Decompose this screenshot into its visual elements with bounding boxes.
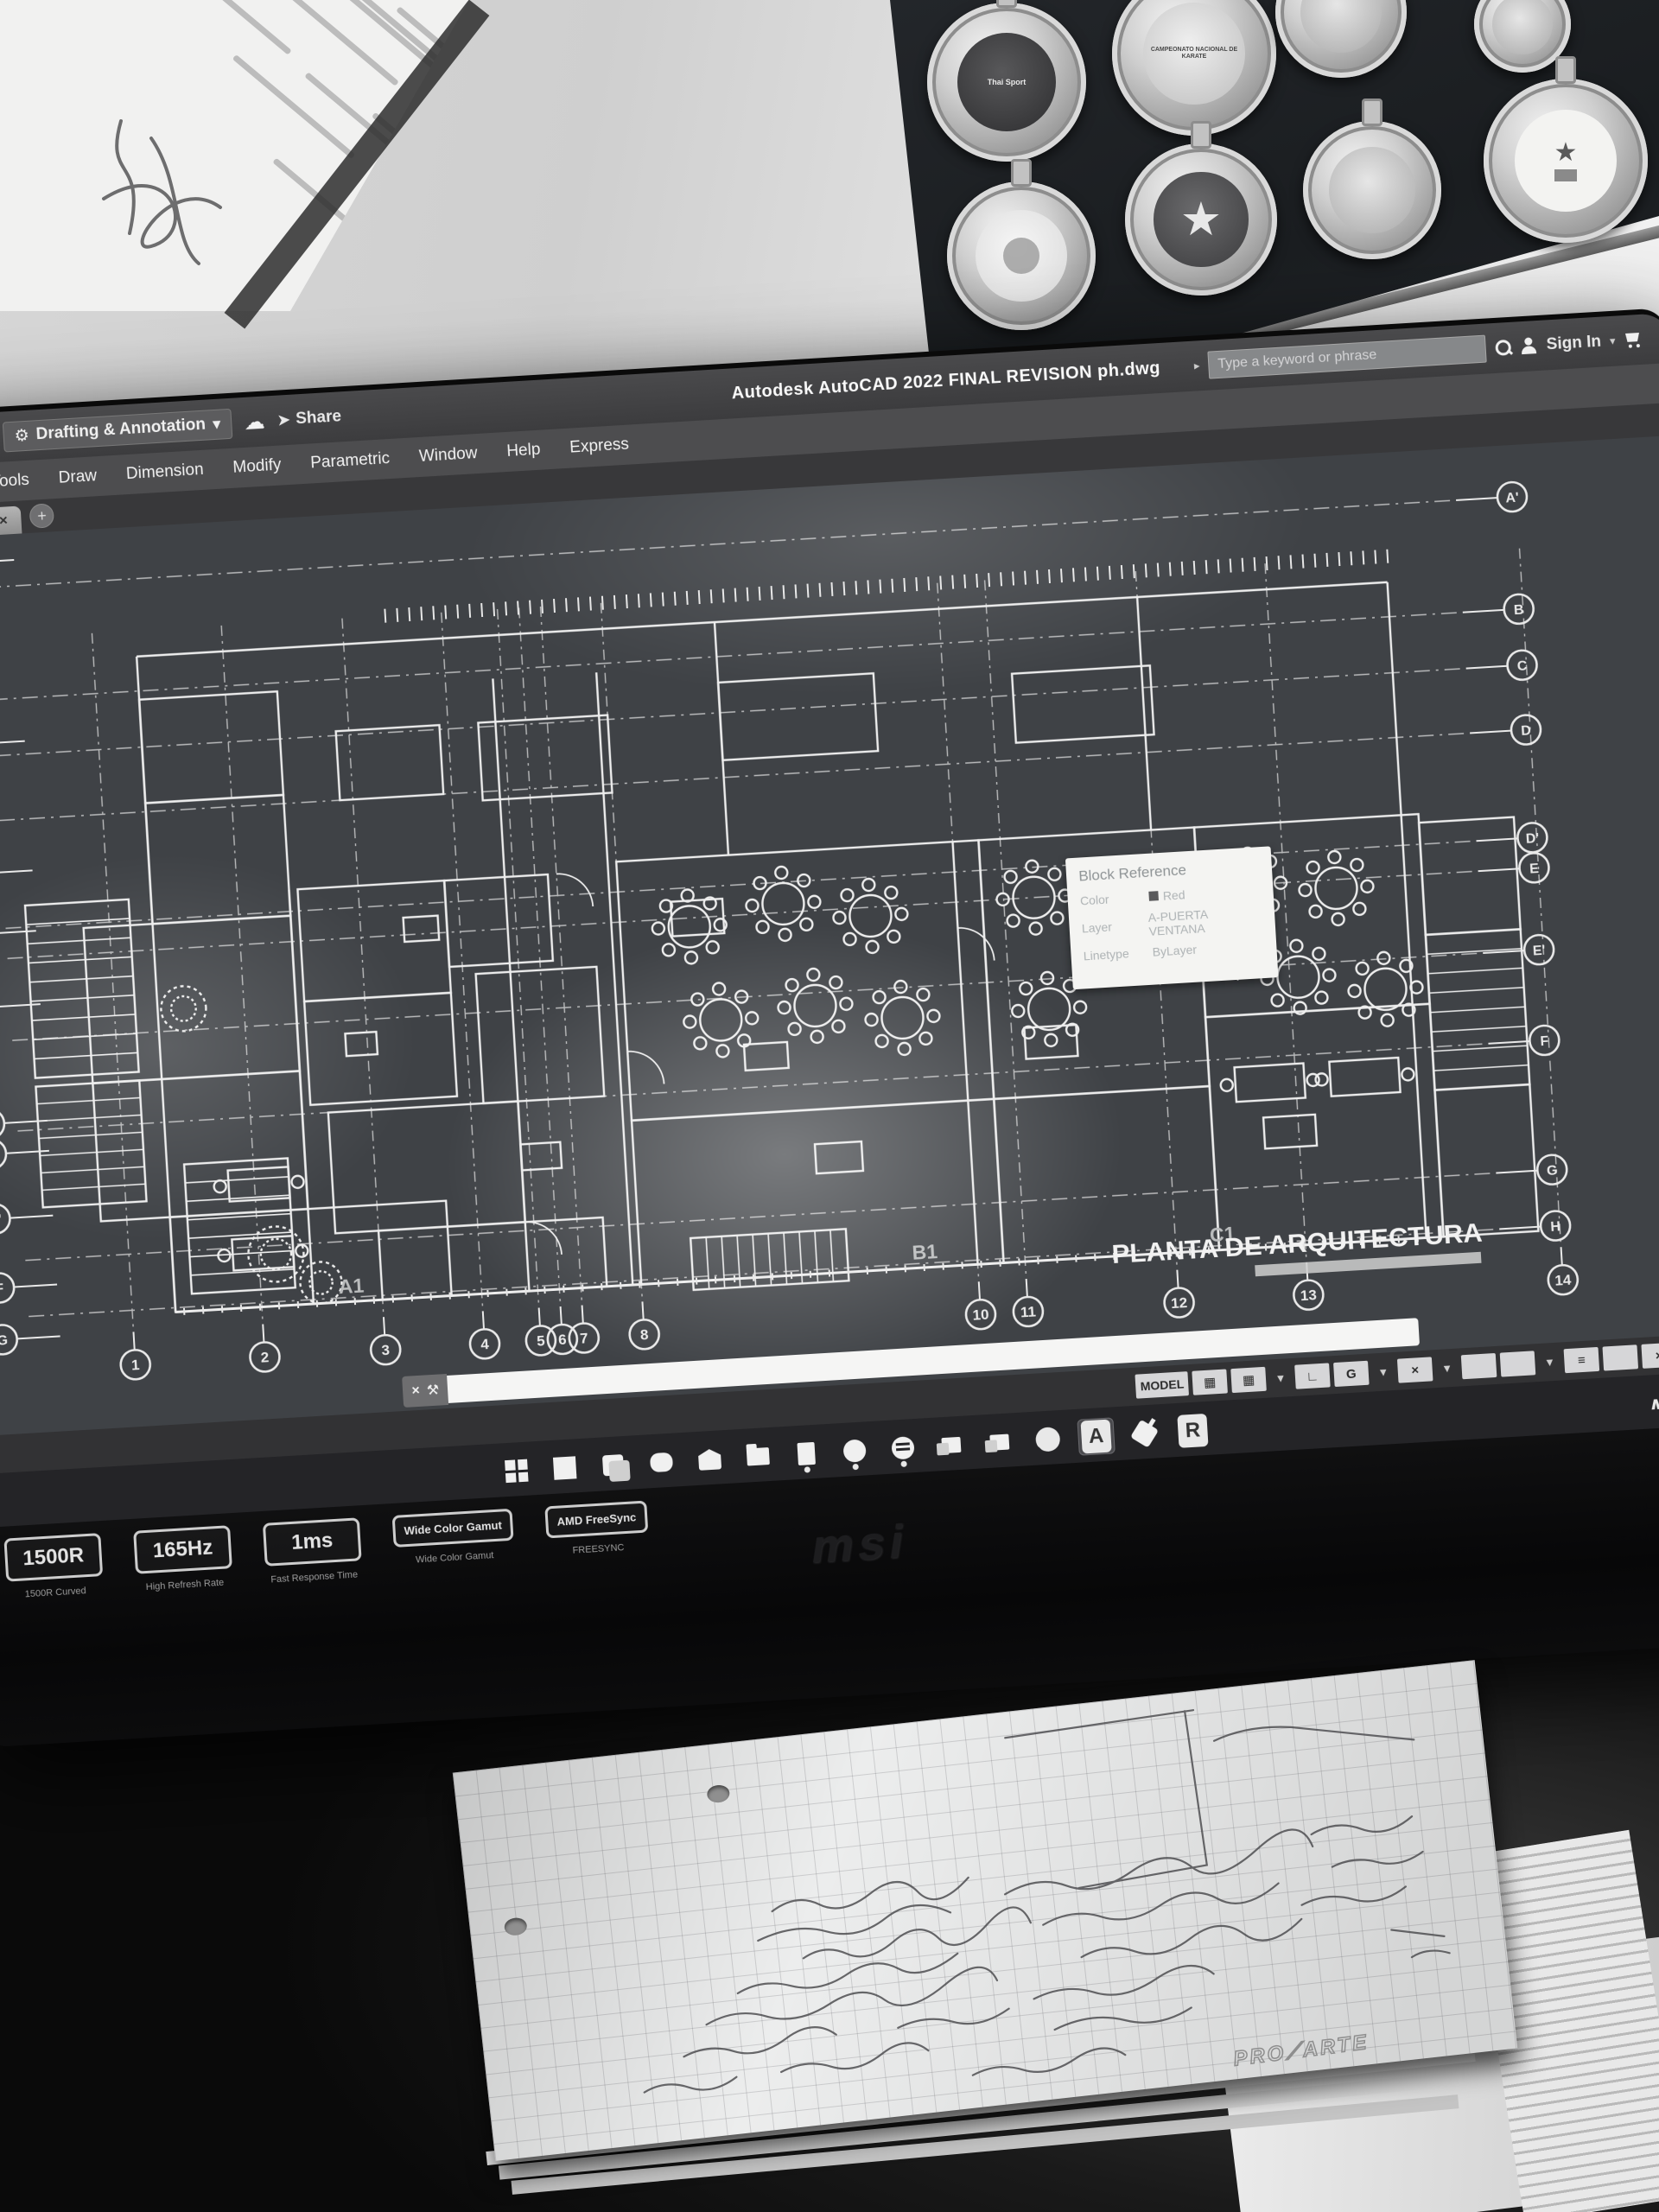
- user-avatar-icon: [1520, 337, 1538, 355]
- grid-bubbles-left: AA'BCDD'EE'FG: [0, 545, 61, 1355]
- medal-hanger: [1191, 121, 1211, 149]
- tooltip-row: LinetypeByLayer: [1083, 938, 1265, 963]
- photos-app-icon: [842, 1439, 866, 1462]
- taskbar-photos-app[interactable]: [836, 1432, 874, 1470]
- medal-hanger: [1362, 99, 1382, 126]
- statusbar-isolate-objects[interactable]: [1602, 1344, 1638, 1370]
- engraved-medal: [1303, 121, 1441, 259]
- statusbar-annotation-visibility[interactable]: [1461, 1353, 1497, 1379]
- taskbar-file-explorer[interactable]: [739, 1438, 777, 1476]
- running-indicator: [853, 1464, 859, 1470]
- gear-icon: ⚙: [14, 425, 29, 446]
- file-explorer-icon: [747, 1447, 770, 1466]
- star-medal: ★: [1125, 143, 1277, 296]
- statusbar-annotation-scale[interactable]: [1500, 1351, 1536, 1376]
- share-plane-icon: ➤: [276, 410, 291, 430]
- zone-labels: A1B1C1: [338, 1223, 1236, 1299]
- whatsapp-icon: [1035, 1427, 1061, 1452]
- svg-text:G: G: [0, 1333, 9, 1349]
- svg-text:E': E': [0, 1212, 2, 1228]
- share-label: Share: [296, 407, 342, 429]
- svg-text:7: 7: [580, 1330, 589, 1347]
- workspace-label: Drafting & Annotation: [35, 416, 207, 445]
- taskbar-microsoft-store[interactable]: [690, 1440, 728, 1478]
- revit-icon: R: [1177, 1414, 1208, 1448]
- statusbar-polar-caret[interactable]: ▾: [1372, 1359, 1395, 1384]
- tooltip-title: Block Reference: [1078, 857, 1261, 885]
- svg-text:E': E': [1532, 944, 1545, 959]
- taskbar-revit[interactable]: R: [1173, 1412, 1211, 1450]
- medal-hanger: [996, 0, 1017, 8]
- taskbar-window-app-1[interactable]: [932, 1426, 970, 1464]
- menu-dimension[interactable]: Dimension: [125, 461, 204, 484]
- menu-parametric[interactable]: Parametric: [310, 449, 391, 473]
- taskbar-search[interactable]: [546, 1449, 584, 1487]
- taskbar-snipping-tool[interactable]: [1125, 1414, 1163, 1452]
- thai-sport-medal: Thai Sport: [927, 3, 1086, 162]
- msi-logo: msi: [808, 1514, 912, 1573]
- svg-text:E: E: [1529, 861, 1540, 877]
- emblem-glyph: [1003, 238, 1040, 275]
- badge-fast-response-time: 1msFast Response Time: [263, 1517, 363, 1586]
- svg-text:1: 1: [130, 1357, 140, 1374]
- grid-bubbles-right: A'BCDD'EE'FGH: [1455, 481, 1571, 1243]
- taskbar-whatsapp[interactable]: [1029, 1421, 1067, 1459]
- svg-text:14: 14: [1554, 1272, 1573, 1289]
- svg-text:B: B: [1514, 603, 1525, 619]
- menu-tools[interactable]: Tools: [0, 471, 30, 493]
- statusbar-osnap-caret[interactable]: ▾: [1436, 1356, 1459, 1381]
- svg-text:4: 4: [480, 1336, 490, 1353]
- certificate-text-line: [149, 0, 291, 55]
- system-tray: ∧℮●: [1647, 1371, 1659, 1432]
- taskbar-notes-app[interactable]: [787, 1434, 825, 1472]
- statusbar-lineweight[interactable]: ≡: [1564, 1347, 1600, 1373]
- statusbar-polar-tracking[interactable]: G: [1333, 1361, 1370, 1387]
- command-line-controls: × ⚒: [402, 1374, 448, 1408]
- drawing-canvas[interactable]: 123456781011121314 AA'BCDD'EE'FG A'BCDD'…: [0, 435, 1659, 1437]
- emblem-medal: [947, 181, 1096, 330]
- signin-caret-icon[interactable]: ▾: [1609, 334, 1615, 348]
- badge-1500r-curved: 1500R1500R Curved: [3, 1533, 104, 1601]
- search-caret-icon[interactable]: ▸: [1193, 359, 1199, 372]
- menu-window[interactable]: Window: [418, 444, 478, 467]
- menu-express[interactable]: Express: [569, 435, 630, 458]
- new-tab-button[interactable]: +: [29, 503, 55, 529]
- statusbar-object-snap[interactable]: ×: [1397, 1357, 1433, 1382]
- svg-text:C: C: [1516, 658, 1528, 674]
- snipping-tool-icon: [1130, 1420, 1159, 1448]
- signature: [69, 104, 294, 276]
- share-button[interactable]: ➤ Share: [276, 407, 342, 430]
- medal-inscription: CAMPEONATO NACIONAL DE KARATE: [1143, 45, 1245, 62]
- taskbar-window-app-2[interactable]: [981, 1423, 1019, 1461]
- spotify-icon: [891, 1436, 914, 1459]
- svg-text:12: 12: [1171, 1294, 1188, 1312]
- svg-text:F: F: [0, 1281, 4, 1297]
- medal-hanger: [1555, 56, 1576, 84]
- svg-text:8: 8: [639, 1326, 649, 1344]
- star-flag-medal: ★: [1484, 79, 1648, 243]
- start-icon: [505, 1459, 528, 1483]
- command-close-icon[interactable]: ×: [411, 1383, 420, 1400]
- microsoft-store-icon: [698, 1448, 721, 1470]
- tray-expand-icon[interactable]: ∧: [1648, 1392, 1659, 1414]
- workspace-switcher[interactable]: ⚙ Drafting & Annotation ▾: [3, 408, 233, 452]
- svg-text:F: F: [1540, 1034, 1549, 1050]
- search-icon: [553, 1456, 576, 1479]
- badge-high-refresh-rate: 165HzHigh Refresh Rate: [133, 1525, 233, 1593]
- svg-text:A': A': [1505, 491, 1519, 506]
- cloud-icon[interactable]: ☁: [244, 409, 266, 435]
- block-reference-tooltip: Block Reference ColorRedLayerA-PUERTA VE…: [1065, 847, 1279, 990]
- taskbar-start[interactable]: [498, 1452, 536, 1490]
- star-glyph: ★: [1180, 196, 1222, 243]
- menu-modify[interactable]: Modify: [232, 456, 282, 478]
- window-app-2-icon: [989, 1434, 1009, 1451]
- tooltip-row: ColorRed: [1080, 883, 1262, 907]
- workspace-caret-icon: ▾: [212, 414, 221, 435]
- window-app-1-icon: [941, 1437, 961, 1453]
- svg-text:11: 11: [1020, 1303, 1036, 1320]
- screen: ↶ ▾ ↷ ▾ ⚙ Drafting & Annotation ▾ ☁ ➤ Sh…: [0, 308, 1659, 1533]
- running-indicator: [804, 1466, 810, 1472]
- search-input[interactable]: [1208, 335, 1487, 379]
- autocad-icon: A: [1081, 1420, 1112, 1454]
- task-view-icon: [602, 1454, 624, 1476]
- command-wrench-icon[interactable]: ⚒: [426, 1382, 440, 1400]
- running-indicator: [900, 1461, 906, 1467]
- svg-text:5: 5: [537, 1332, 546, 1350]
- color-swatch: [1149, 891, 1160, 901]
- tooltip-row: LayerA-PUERTA VENTANA: [1081, 904, 1264, 942]
- svg-text:13: 13: [1300, 1287, 1317, 1304]
- medal-hanger: [1011, 159, 1032, 187]
- statusbar-snap-mode[interactable]: ▦: [1230, 1367, 1267, 1393]
- menu-help[interactable]: Help: [506, 441, 541, 461]
- menu-draw[interactable]: Draw: [58, 467, 98, 488]
- svg-text:B1: B1: [912, 1240, 938, 1264]
- floor-plan-drawing[interactable]: 123456781011121314 AA'BCDD'EE'FG A'BCDD'…: [0, 443, 1586, 1410]
- file-tab-close-icon[interactable]: ×: [0, 512, 8, 530]
- svg-text:6: 6: [558, 1332, 568, 1349]
- msi-monitor: ↶ ▾ ↷ ▾ ⚙ Drafting & Annotation ▾ ☁ ➤ Sh…: [0, 308, 1659, 1747]
- svg-text:2: 2: [260, 1349, 270, 1366]
- taskbar-task-view[interactable]: [594, 1446, 632, 1484]
- svg-text:D: D: [1521, 723, 1532, 739]
- sign-in-button[interactable]: Sign In: [1546, 333, 1602, 355]
- taskbar-spotify[interactable]: [884, 1429, 922, 1467]
- window-title: Autodesk AutoCAD 2022 FINAL REVISION ph.…: [731, 358, 1161, 403]
- statusbar-hardware-accel[interactable]: ×: [1641, 1343, 1659, 1369]
- statusbar-grid-display[interactable]: ▦: [1192, 1369, 1228, 1395]
- badge-wide-color-gamut: Wide Color GamutWide Color Gamut: [392, 1509, 516, 1567]
- svg-text:3: 3: [381, 1342, 391, 1359]
- badge-freesync: AMD FreeSyncFREESYNC: [545, 1501, 650, 1558]
- statusbar-annotation-caret[interactable]: ▾: [1539, 1350, 1561, 1375]
- svg-text:A1: A1: [338, 1274, 365, 1298]
- photo-scene: Thai SportCAMPEONATO NACIONAL DE KARATE★…: [0, 0, 1659, 2212]
- svg-text:H: H: [1550, 1219, 1561, 1235]
- medal-inscription: Thai Sport: [986, 76, 1028, 88]
- statusbar-ortho-mode[interactable]: ∟: [1294, 1363, 1331, 1389]
- svg-text:D': D': [1525, 831, 1539, 847]
- notes-app-icon: [797, 1442, 816, 1465]
- taskbar-chat[interactable]: [642, 1443, 680, 1481]
- statusbar-model-toggle[interactable]: MODEL: [1135, 1371, 1189, 1399]
- taskbar-autocad[interactable]: A: [1077, 1417, 1115, 1455]
- app-store-cart-icon[interactable]: [1624, 331, 1645, 349]
- flag-glyph: [1554, 169, 1577, 181]
- svg-text:G: G: [1547, 1163, 1558, 1179]
- star-glyph: ★: [1554, 140, 1578, 166]
- chat-icon: [650, 1452, 673, 1473]
- statusbar-snap-caret[interactable]: ▾: [1269, 1365, 1292, 1390]
- svg-text:10: 10: [972, 1306, 989, 1324]
- search-icon[interactable]: [1494, 339, 1512, 357]
